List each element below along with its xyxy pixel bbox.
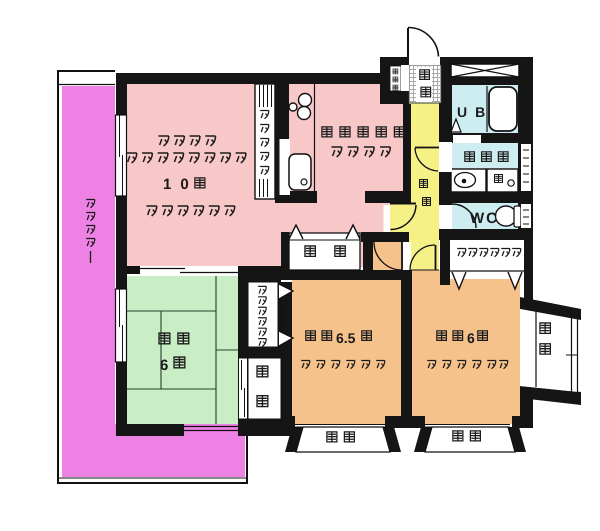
svg-text:6: 6 <box>160 357 168 374</box>
svg-text:6.5: 6.5 <box>336 330 356 346</box>
svg-text:WC: WC <box>470 210 499 227</box>
svg-text:UB: UB <box>457 104 493 120</box>
svg-text:10: 10 <box>163 176 198 193</box>
svg-text:6: 6 <box>467 330 475 346</box>
